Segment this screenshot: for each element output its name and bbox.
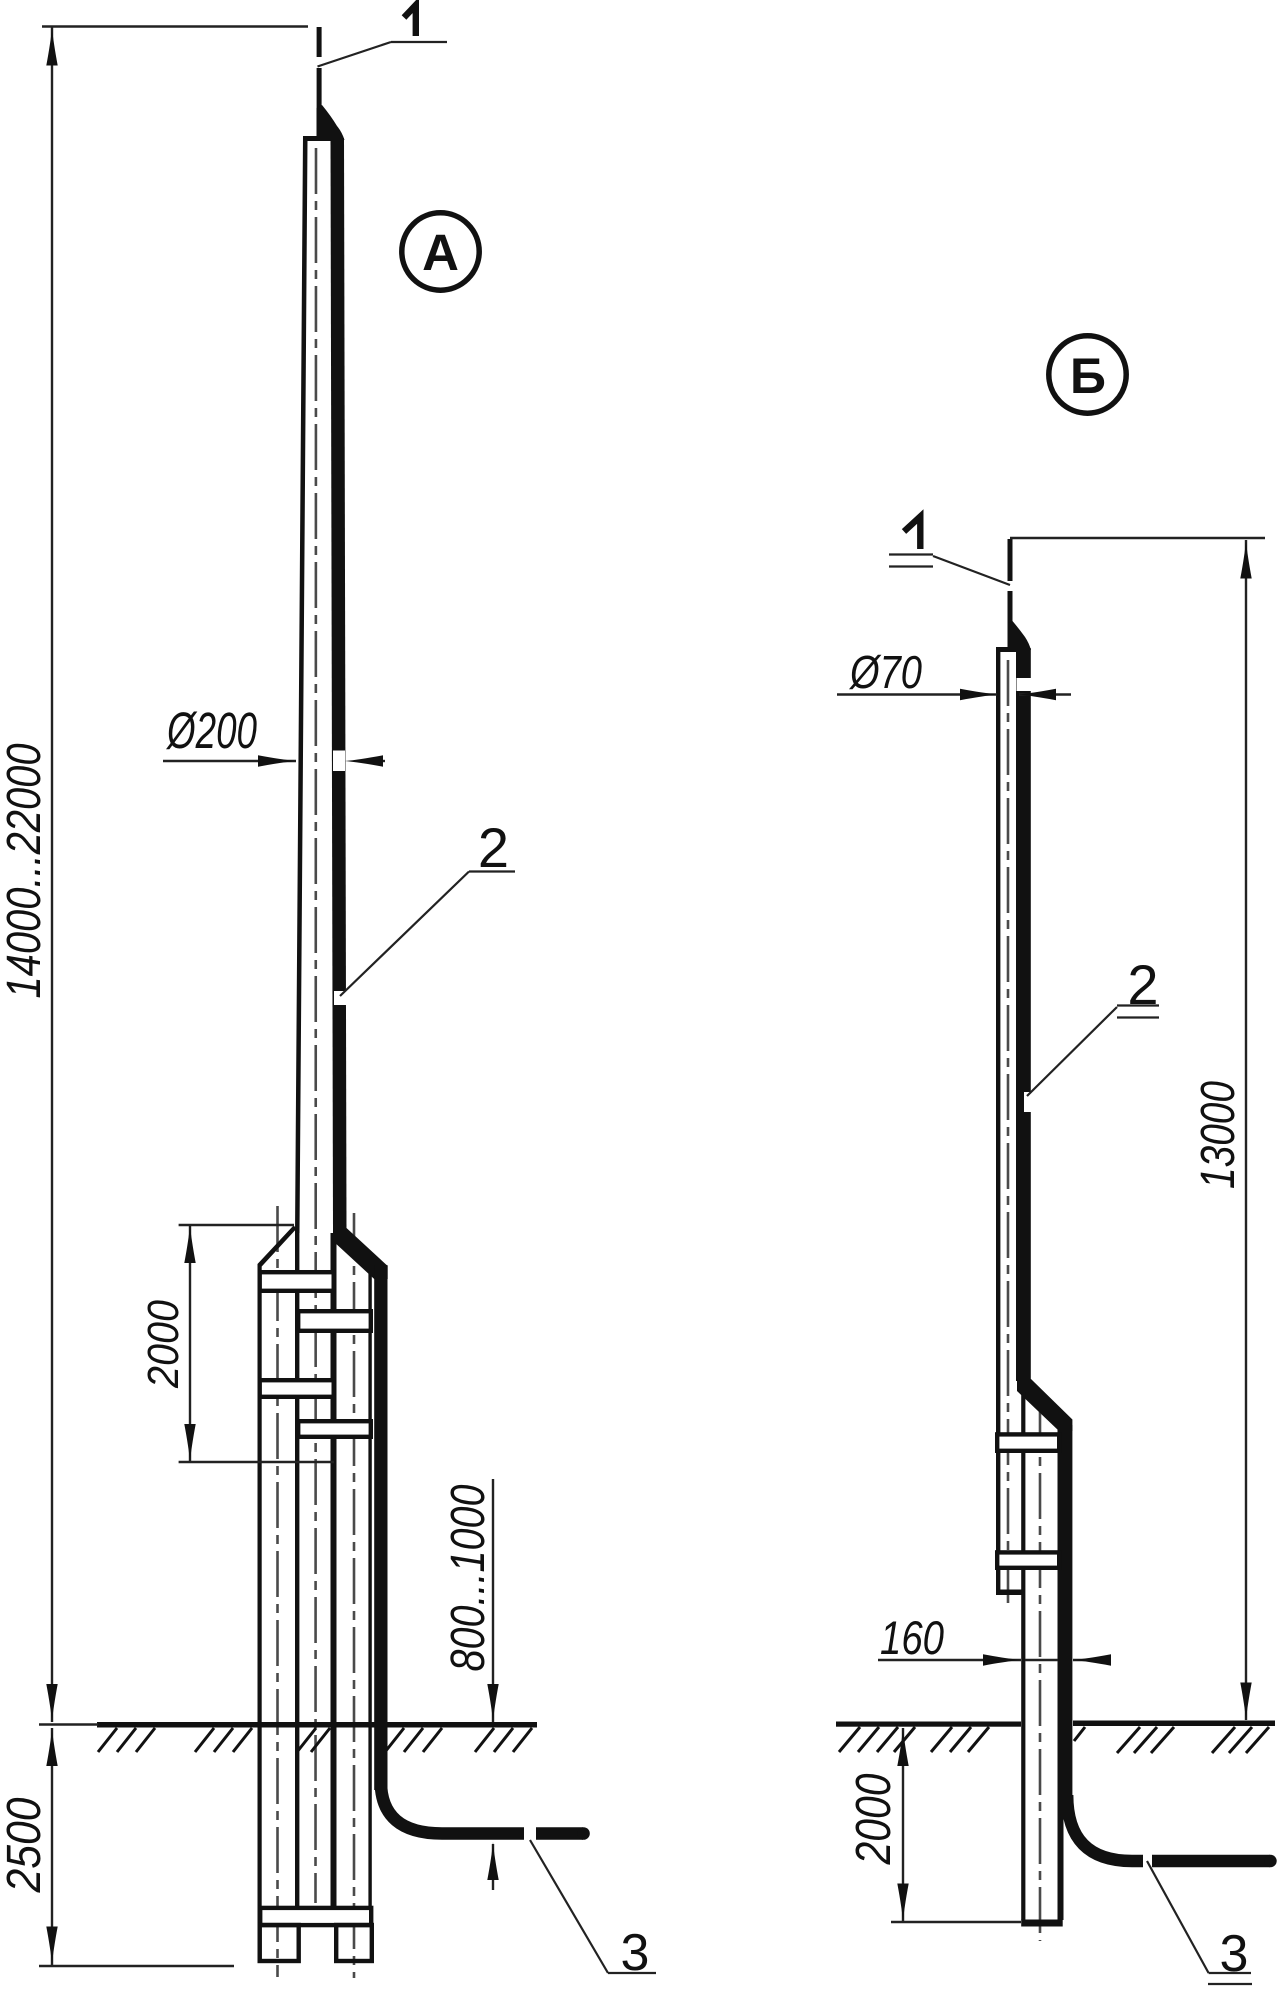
svg-text:Б: Б — [1070, 348, 1106, 404]
svg-text:Ø70: Ø70 — [848, 646, 922, 698]
svg-text:А: А — [422, 224, 459, 281]
svg-text:Ø200: Ø200 — [166, 702, 257, 759]
svg-text:2000: 2000 — [139, 1300, 188, 1389]
svg-text:3: 3 — [621, 1924, 650, 1982]
svg-text:2500: 2500 — [0, 1797, 51, 1893]
svg-text:14000...22000: 14000...22000 — [0, 743, 51, 998]
svg-text:2000: 2000 — [847, 1774, 901, 1866]
svg-text:2: 2 — [478, 816, 509, 879]
svg-text:2: 2 — [1127, 953, 1158, 1016]
svg-text:13000: 13000 — [1192, 1081, 1245, 1189]
svg-text:3: 3 — [1220, 1925, 1249, 1983]
svg-text:160: 160 — [880, 1611, 944, 1664]
svg-text:800...1000: 800...1000 — [442, 1484, 495, 1671]
